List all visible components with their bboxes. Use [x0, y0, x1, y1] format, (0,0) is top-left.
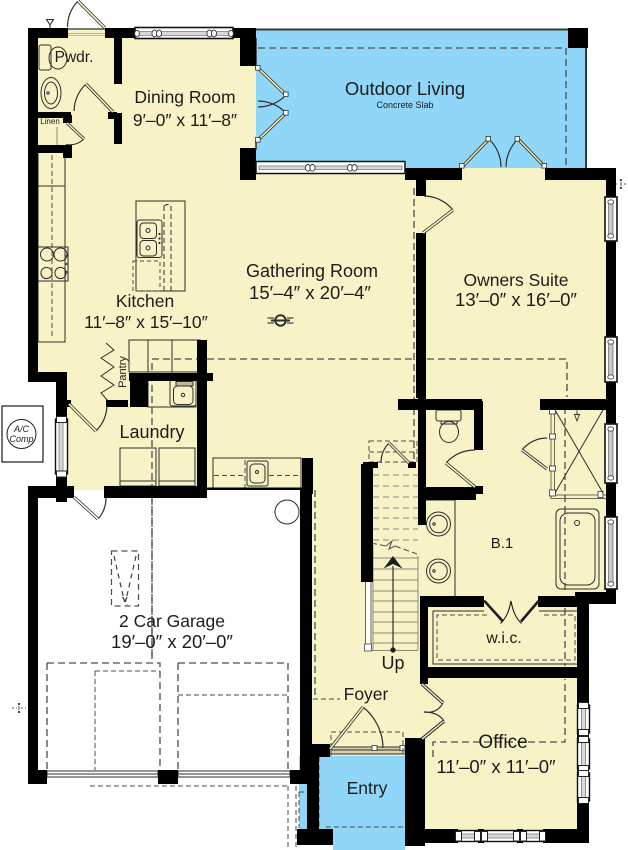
svg-text:11′–8″ x 15′–10″: 11′–8″ x 15′–10″: [84, 312, 208, 332]
svg-text:Concrete Slab: Concrete Slab: [376, 100, 433, 110]
svg-text:11′–0″ x 11′–0″: 11′–0″ x 11′–0″: [436, 756, 556, 777]
svg-text:Pwdr.: Pwdr.: [55, 49, 94, 66]
svg-text:13′–0″ x 16′–0″: 13′–0″ x 16′–0″: [455, 289, 577, 310]
svg-text:Owners Suite: Owners Suite: [463, 270, 568, 290]
svg-text:Gathering Room: Gathering Room: [246, 261, 378, 281]
svg-text:Laundry: Laundry: [119, 422, 184, 442]
svg-text:w.i.c.: w.i.c.: [485, 630, 522, 647]
svg-text:Foyer: Foyer: [344, 684, 389, 704]
svg-text:Pantry: Pantry: [117, 356, 129, 388]
svg-text:Outdoor Living: Outdoor Living: [345, 78, 465, 99]
svg-text:15′–4″ x 20′–4″: 15′–4″ x 20′–4″: [249, 282, 371, 303]
svg-text:9′–0″ x 11′–8″: 9′–0″ x 11′–8″: [133, 110, 237, 130]
svg-text:Comp: Comp: [9, 434, 33, 444]
svg-text:B.1: B.1: [491, 535, 514, 552]
svg-text:19′–0″ x 20′–0″: 19′–0″ x 20′–0″: [111, 631, 233, 652]
svg-text:A/C: A/C: [13, 424, 30, 434]
svg-text:2 Car Garage: 2 Car Garage: [119, 611, 225, 631]
svg-text:Linen: Linen: [40, 117, 60, 126]
svg-text:Kitchen: Kitchen: [116, 291, 174, 311]
svg-text:Entry: Entry: [347, 778, 388, 798]
svg-text:Office: Office: [478, 732, 527, 753]
svg-text:Dining Room: Dining Room: [134, 87, 235, 107]
svg-text:Up: Up: [381, 653, 404, 673]
